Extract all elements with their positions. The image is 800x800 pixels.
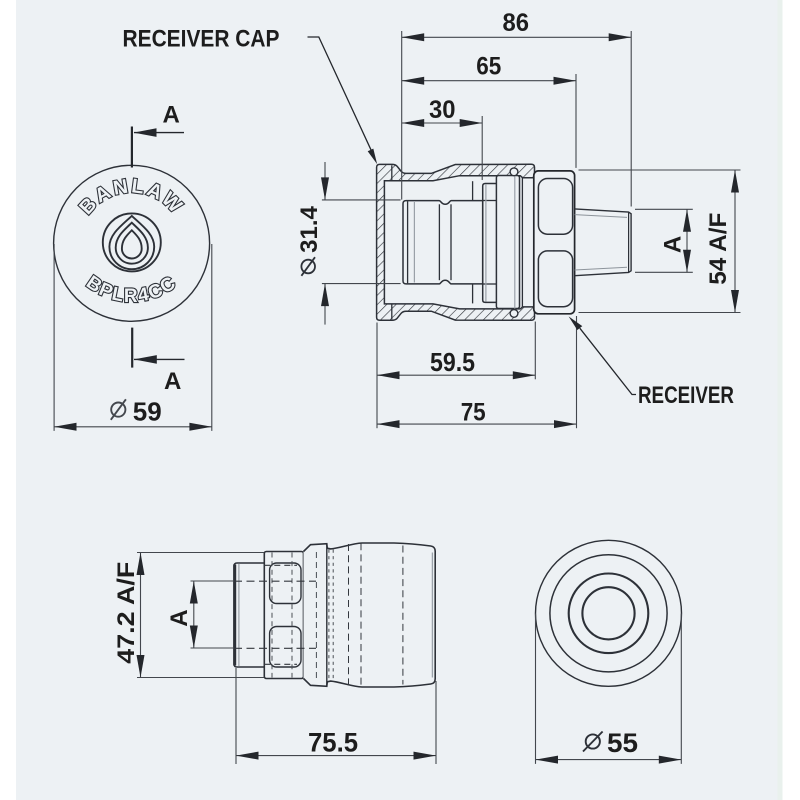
svg-text:RECEIVER: RECEIVER bbox=[638, 382, 734, 409]
svg-text:A: A bbox=[660, 236, 687, 253]
svg-text:A: A bbox=[166, 609, 193, 626]
svg-text:75.5: 75.5 bbox=[308, 728, 358, 758]
svg-text:86: 86 bbox=[503, 9, 530, 37]
svg-text:59: 59 bbox=[133, 397, 162, 427]
svg-text:65: 65 bbox=[476, 53, 501, 81]
svg-text:A: A bbox=[163, 102, 180, 129]
svg-text:75: 75 bbox=[461, 399, 486, 427]
svg-text:RECEIVER CAP: RECEIVER CAP bbox=[123, 26, 280, 53]
svg-text:59.5: 59.5 bbox=[430, 347, 475, 377]
svg-text:55: 55 bbox=[607, 728, 638, 758]
svg-text:31.4: 31.4 bbox=[296, 205, 323, 252]
svg-text:A: A bbox=[164, 368, 181, 395]
svg-text:54 A/F: 54 A/F bbox=[705, 213, 732, 285]
svg-text:47.2 A/F: 47.2 A/F bbox=[113, 562, 140, 664]
svg-text:30: 30 bbox=[429, 96, 456, 124]
